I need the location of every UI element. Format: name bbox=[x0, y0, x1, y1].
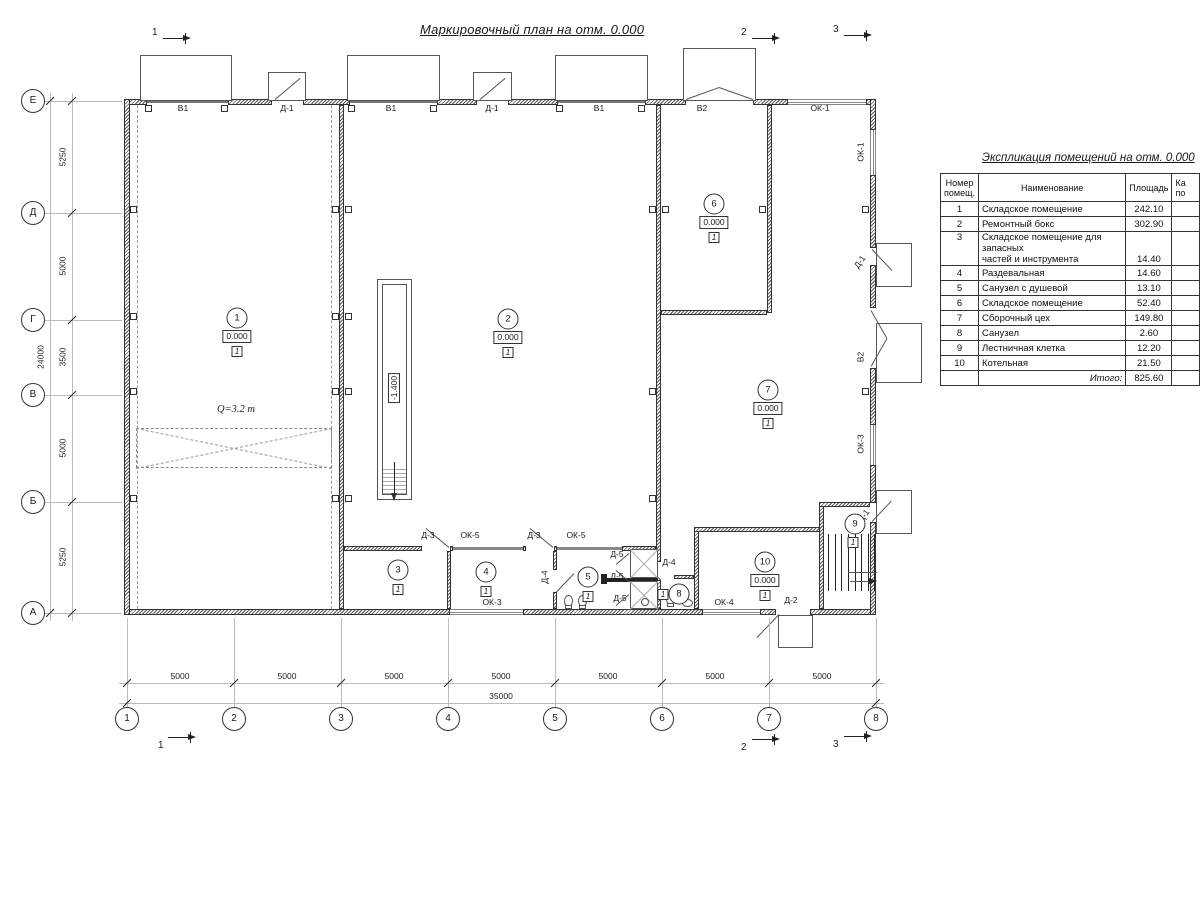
room-category: 1 bbox=[760, 590, 771, 601]
dim-label: 5250 bbox=[59, 548, 68, 567]
porch-outline bbox=[268, 72, 306, 101]
cell-room-name: Складское помещение для запасныхчастей и… bbox=[978, 232, 1125, 266]
pilaster bbox=[556, 105, 563, 112]
porch-outline bbox=[876, 243, 912, 287]
spec-row: 5Санузел с душевой13.10 bbox=[941, 281, 1200, 296]
wall-segment bbox=[553, 592, 557, 609]
room-elevation: 0.000 bbox=[753, 402, 782, 415]
opening-label-top: В1 bbox=[594, 104, 604, 113]
extension-line bbox=[341, 618, 342, 708]
opening-label-inner: Д-4 bbox=[662, 558, 675, 567]
dim-label: 5000 bbox=[385, 672, 404, 681]
opening-label-top: В1 bbox=[386, 104, 396, 113]
section-bar bbox=[866, 731, 867, 742]
axis-circle-col: 4 bbox=[436, 707, 460, 731]
wall-segment bbox=[523, 546, 526, 551]
cell-room-category bbox=[1172, 311, 1200, 326]
dim-label: 5000 bbox=[59, 257, 68, 276]
wall-segment bbox=[508, 99, 558, 105]
axis-circle-col: 8 bbox=[864, 707, 888, 731]
room-category: 1 bbox=[481, 586, 492, 597]
col-header-num-line2: помещ. bbox=[944, 188, 975, 198]
toilet-tank bbox=[565, 605, 572, 609]
section-line bbox=[752, 38, 772, 39]
pilaster bbox=[345, 495, 352, 502]
room-category: 1 bbox=[709, 232, 720, 243]
spec-row: 8Санузел2.60 bbox=[941, 326, 1200, 341]
floor-drain bbox=[641, 598, 649, 606]
wall-segment bbox=[553, 551, 557, 570]
dim-label: 3500 bbox=[59, 348, 68, 367]
extension-line bbox=[234, 618, 235, 708]
cell-room-area: 2.60 bbox=[1126, 326, 1172, 341]
dim-label: 5000 bbox=[492, 672, 511, 681]
room-category: 1 bbox=[583, 591, 594, 602]
cell-room-number: 7 bbox=[941, 311, 979, 326]
cell-room-name: Санузел с душевой bbox=[978, 281, 1125, 296]
dim-total-label: 24000 bbox=[37, 345, 46, 369]
spec-row: 7Сборочный цех149.80 bbox=[941, 311, 1200, 326]
section-line bbox=[168, 737, 188, 738]
pilaster bbox=[130, 313, 137, 320]
col-header-category: Капо bbox=[1172, 174, 1200, 202]
wall-segment bbox=[437, 99, 477, 105]
room-number-circle: 10 bbox=[755, 552, 776, 573]
room-elevation: 0.000 bbox=[493, 331, 522, 344]
cell-room-category bbox=[1172, 341, 1200, 356]
toilet-tank bbox=[667, 603, 674, 607]
col-header-num-line1: Номер bbox=[946, 178, 974, 188]
cell-room-area: 242.10 bbox=[1126, 202, 1172, 217]
cell-room-name: Лестничная клетка bbox=[978, 341, 1125, 356]
cell-room-name: Складское помещение bbox=[978, 202, 1125, 217]
cell-room-area: 14.40 bbox=[1126, 232, 1172, 266]
pilaster bbox=[221, 105, 228, 112]
pilaster bbox=[130, 388, 137, 395]
door-leaf bbox=[757, 614, 780, 638]
section-number: 1 bbox=[158, 741, 164, 751]
cell-room-name: Котельная bbox=[978, 356, 1125, 371]
porch-outline bbox=[555, 55, 648, 101]
room-category: 1 bbox=[763, 418, 774, 429]
cell-room-category bbox=[1172, 217, 1200, 232]
axis-circle-row: В bbox=[21, 383, 45, 407]
room-number-circle: 6 bbox=[704, 194, 725, 215]
section-line bbox=[844, 736, 864, 737]
pilaster bbox=[332, 313, 339, 320]
spec-row: 6Складское помещение52.40 bbox=[941, 296, 1200, 311]
opening-label-bottom: ОК-3 bbox=[482, 598, 501, 607]
section-line bbox=[844, 35, 864, 36]
cell-room-category bbox=[1172, 326, 1200, 341]
stair-arrow bbox=[850, 581, 870, 582]
wall-segment bbox=[760, 609, 776, 615]
spec-title: Экспликация помещений на отм. 0.000 bbox=[982, 152, 1200, 164]
cell-room-number bbox=[941, 371, 979, 386]
section-bar bbox=[774, 734, 775, 745]
window-ok3-bottom bbox=[450, 609, 523, 615]
section-number: 2 bbox=[741, 28, 747, 38]
wall-segment bbox=[447, 551, 451, 609]
section-line bbox=[163, 38, 183, 39]
wall-segment bbox=[870, 522, 876, 615]
opening-label-bottom: ОК-4 bbox=[714, 598, 733, 607]
window-ok4-bottom bbox=[703, 609, 760, 615]
pilaster bbox=[662, 206, 669, 213]
spec-row: 3Складское помещение для запасныхчастей … bbox=[941, 232, 1200, 266]
col-header-room-number: Номерпомещ. bbox=[941, 174, 979, 202]
pilaster bbox=[345, 206, 352, 213]
spec-header-row: Номерпомещ. Наименование Площадь Капо bbox=[941, 174, 1200, 202]
cell-room-name: Сборочный цех bbox=[978, 311, 1125, 326]
wall-segment bbox=[645, 99, 686, 105]
section-bar bbox=[185, 33, 186, 44]
crane-capacity-label: Q=3.2 т bbox=[217, 404, 255, 415]
porch-outline bbox=[347, 55, 440, 101]
wall-segment bbox=[523, 609, 703, 615]
cell-room-name: Итого: bbox=[978, 371, 1125, 386]
cell-room-area: 14.60 bbox=[1126, 266, 1172, 281]
pilaster bbox=[862, 388, 869, 395]
pilaster bbox=[862, 206, 869, 213]
pilaster bbox=[430, 105, 437, 112]
pilaster bbox=[332, 388, 339, 395]
wall-segment bbox=[810, 609, 876, 615]
extension-line bbox=[44, 101, 122, 102]
dim-label: 5000 bbox=[706, 672, 725, 681]
section-bar bbox=[774, 33, 775, 44]
spec-row: 2Ремонтный бокс302.90 bbox=[941, 217, 1200, 232]
pit-arrow-head bbox=[391, 493, 397, 501]
room-category: 1 bbox=[658, 589, 669, 600]
section-number: 3 bbox=[833, 25, 839, 35]
room-category: 1 bbox=[393, 584, 404, 595]
opening-label-top: В2 bbox=[697, 104, 707, 113]
section-bar bbox=[866, 30, 867, 41]
cell-room-area: 825.60 bbox=[1126, 371, 1172, 386]
room-category: 1 bbox=[503, 347, 514, 358]
room-number-circle: 9 bbox=[845, 514, 866, 535]
cell-room-number: 2 bbox=[941, 217, 979, 232]
cell-room-area: 21.50 bbox=[1126, 356, 1172, 371]
pilaster bbox=[145, 105, 152, 112]
extension-line bbox=[127, 618, 128, 708]
cell-room-number: 1 bbox=[941, 202, 979, 217]
wall-jamb bbox=[601, 574, 607, 584]
porch-outline bbox=[140, 55, 232, 101]
opening-label-inner: Д-4 bbox=[541, 570, 550, 583]
cell-room-number: 8 bbox=[941, 326, 979, 341]
extension-line bbox=[769, 618, 770, 708]
dim-label: 5000 bbox=[171, 672, 190, 681]
cell-room-name: Ремонтный бокс bbox=[978, 217, 1125, 232]
extension-line bbox=[448, 618, 449, 708]
plan-title: Маркировочный план на отм. 0.000 bbox=[420, 22, 644, 37]
section-number: 3 bbox=[833, 740, 839, 750]
stair-landing bbox=[848, 572, 877, 573]
room-number-circle: 1 bbox=[227, 308, 248, 329]
cell-room-area: 149.80 bbox=[1126, 311, 1172, 326]
cell-room-name: Санузел bbox=[978, 326, 1125, 341]
spec-total-row: Итого:825.60 bbox=[941, 371, 1200, 386]
opening-label-right: Д-1 bbox=[852, 254, 867, 270]
axis-circle-row: А bbox=[21, 601, 45, 625]
cell-room-category bbox=[1172, 356, 1200, 371]
cell-room-area: 302.90 bbox=[1126, 217, 1172, 232]
pilaster bbox=[638, 105, 645, 112]
window-ok3-right bbox=[870, 425, 876, 465]
extension-line bbox=[44, 320, 122, 321]
room-elevation: 0.000 bbox=[699, 216, 728, 229]
opening-label-strip: ОК-5 bbox=[460, 531, 479, 540]
dim-label: 5000 bbox=[59, 439, 68, 458]
porch-outline bbox=[473, 72, 512, 101]
axis-circle-col: 2 bbox=[222, 707, 246, 731]
cell-room-area: 52.40 bbox=[1126, 296, 1172, 311]
window-ok1-right bbox=[870, 130, 876, 175]
cell-room-area: 12.20 bbox=[1126, 341, 1172, 356]
porch-outline bbox=[778, 615, 813, 648]
pilaster bbox=[345, 313, 352, 320]
axis-circle-row: Д bbox=[21, 201, 45, 225]
cell-room-category bbox=[1172, 266, 1200, 281]
opening-label-strip: Д-3 bbox=[527, 531, 540, 540]
axis-circle-col: 5 bbox=[543, 707, 567, 731]
dim-label: 5250 bbox=[59, 148, 68, 167]
wall-segment bbox=[674, 575, 694, 579]
axis-circle-col: 6 bbox=[650, 707, 674, 731]
room-number-circle: 5 bbox=[578, 567, 599, 588]
opening-label-inner: Д-5 bbox=[610, 550, 623, 559]
cell-room-name: Складское помещение bbox=[978, 296, 1125, 311]
wall-segment bbox=[694, 527, 822, 532]
room-number-circle: 8 bbox=[669, 584, 690, 605]
section-number: 2 bbox=[741, 743, 747, 753]
room-number-circle: 7 bbox=[758, 380, 779, 401]
room-number-circle: 4 bbox=[476, 562, 497, 583]
drawing-sheet: Маркировочный план на отм. 0.000 Q=3.2 т… bbox=[0, 0, 1200, 900]
pilaster bbox=[348, 105, 355, 112]
dim-total-label: 35000 bbox=[489, 692, 513, 701]
dim-line bbox=[72, 93, 73, 621]
cell-room-name: Раздевальная bbox=[978, 266, 1125, 281]
wall-segment bbox=[124, 99, 130, 615]
axis-circle-row: Е bbox=[21, 89, 45, 113]
room-number-circle: 2 bbox=[498, 309, 519, 330]
opening-label-top: Д-1 bbox=[280, 104, 293, 113]
stair-tread bbox=[835, 534, 836, 591]
extension-line bbox=[662, 618, 663, 708]
section-line bbox=[752, 739, 772, 740]
pilaster bbox=[332, 495, 339, 502]
wall-segment bbox=[656, 105, 661, 562]
pit-elevation-label: -1.400 bbox=[388, 373, 400, 403]
crane-rail bbox=[137, 105, 139, 609]
axis-circle-col: 7 bbox=[757, 707, 781, 731]
opening-label-bottom: Д-2 bbox=[784, 596, 797, 605]
opening-label-top: В1 bbox=[178, 104, 188, 113]
stair-tread bbox=[861, 534, 862, 591]
opening-label-inner: Д-5 bbox=[613, 594, 626, 603]
porch-outline bbox=[683, 48, 756, 101]
room-elevation: 0.000 bbox=[222, 330, 251, 343]
cell-room-number: 6 bbox=[941, 296, 979, 311]
specification-area: Экспликация помещений на отм. 0.000 Номе… bbox=[940, 152, 1200, 386]
cell-room-category bbox=[1172, 296, 1200, 311]
extension-line bbox=[555, 618, 556, 708]
cell-room-category bbox=[1172, 281, 1200, 296]
pilaster bbox=[649, 495, 656, 502]
room-elevation: 0.000 bbox=[750, 574, 779, 587]
extension-line bbox=[44, 213, 122, 214]
pilaster bbox=[649, 206, 656, 213]
wall-segment bbox=[870, 175, 876, 248]
cell-room-number: 10 bbox=[941, 356, 979, 371]
pilaster bbox=[130, 495, 137, 502]
cell-room-number: 5 bbox=[941, 281, 979, 296]
wall-segment bbox=[870, 99, 876, 130]
cell-room-category bbox=[1172, 232, 1200, 266]
extension-line bbox=[44, 502, 122, 503]
pilaster bbox=[345, 388, 352, 395]
toilet-tank bbox=[579, 605, 586, 609]
dim-line bbox=[119, 703, 884, 704]
axis-circle-col: 1 bbox=[115, 707, 139, 731]
axis-circle-row: Г bbox=[21, 308, 45, 332]
crane-rail bbox=[331, 105, 333, 609]
room-category: 1 bbox=[232, 346, 243, 357]
dim-label: 5000 bbox=[813, 672, 832, 681]
extension-line bbox=[44, 613, 122, 614]
col-header-name: Наименование bbox=[978, 174, 1125, 202]
axis-circle-row: Б bbox=[21, 490, 45, 514]
wall-segment bbox=[694, 527, 699, 609]
col-header-area: Площадь bbox=[1126, 174, 1172, 202]
cell-room-number: 4 bbox=[941, 266, 979, 281]
col-header-cat-line1: Ка bbox=[1175, 178, 1185, 188]
wall-segment bbox=[819, 502, 824, 609]
cell-room-number: 9 bbox=[941, 341, 979, 356]
section-bar bbox=[190, 732, 191, 743]
wall-segment bbox=[127, 609, 450, 615]
dim-line bbox=[50, 93, 51, 621]
pilaster bbox=[332, 206, 339, 213]
opening-label-right: ОК-1 bbox=[857, 142, 866, 161]
room-category: 1 bbox=[848, 537, 859, 548]
opening-label-inner: Д-5 bbox=[610, 572, 623, 581]
opening-label-strip: ОК-5 bbox=[566, 531, 585, 540]
extension-line bbox=[44, 395, 122, 396]
door-leaf bbox=[556, 573, 575, 593]
opening-label-right: ОК-3 bbox=[857, 434, 866, 453]
dim-label: 5000 bbox=[599, 672, 618, 681]
dim-label: 5000 bbox=[278, 672, 297, 681]
cell-room-category bbox=[1172, 371, 1200, 386]
spec-row: 9Лестничная клетка12.20 bbox=[941, 341, 1200, 356]
spec-row: 1Складское помещение242.10 bbox=[941, 202, 1200, 217]
spec-row: 4Раздевальная14.60 bbox=[941, 266, 1200, 281]
axis-circle-col: 3 bbox=[329, 707, 353, 731]
extension-line bbox=[876, 618, 877, 708]
spec-row: 10Котельная21.50 bbox=[941, 356, 1200, 371]
col-header-cat-line2: по bbox=[1175, 188, 1185, 198]
opening-label-right: В2 bbox=[857, 352, 866, 362]
stair-tread bbox=[841, 534, 842, 591]
wall-segment bbox=[661, 310, 767, 315]
window-ok5-a bbox=[453, 547, 523, 550]
opening-label-top: Д-1 bbox=[485, 104, 498, 113]
opening-label-strip: Д-3 bbox=[421, 531, 434, 540]
pilaster bbox=[649, 388, 656, 395]
wall-segment bbox=[339, 105, 344, 609]
opening-label-top: ОК-1 bbox=[810, 104, 829, 113]
section-number: 1 bbox=[152, 28, 158, 38]
wall-segment bbox=[344, 546, 422, 551]
room-number-circle: 3 bbox=[388, 560, 409, 581]
room-name-line2: частей и инструмента bbox=[982, 254, 1122, 265]
wall-segment bbox=[228, 99, 272, 105]
room-name-line1: Складское помещение для запасных bbox=[982, 232, 1122, 254]
wall-segment bbox=[767, 105, 772, 313]
pilaster bbox=[759, 206, 766, 213]
pit-arrow-line bbox=[394, 462, 395, 493]
pilaster bbox=[130, 206, 137, 213]
stair-tread bbox=[828, 534, 829, 591]
spec-table: Номерпомещ. Наименование Площадь Капо 1С… bbox=[940, 173, 1200, 386]
wall-segment bbox=[819, 502, 870, 507]
stair-arrow-head bbox=[869, 578, 877, 584]
cell-room-number: 3 bbox=[941, 232, 979, 266]
cell-room-area: 13.10 bbox=[1126, 281, 1172, 296]
cell-room-category bbox=[1172, 202, 1200, 217]
